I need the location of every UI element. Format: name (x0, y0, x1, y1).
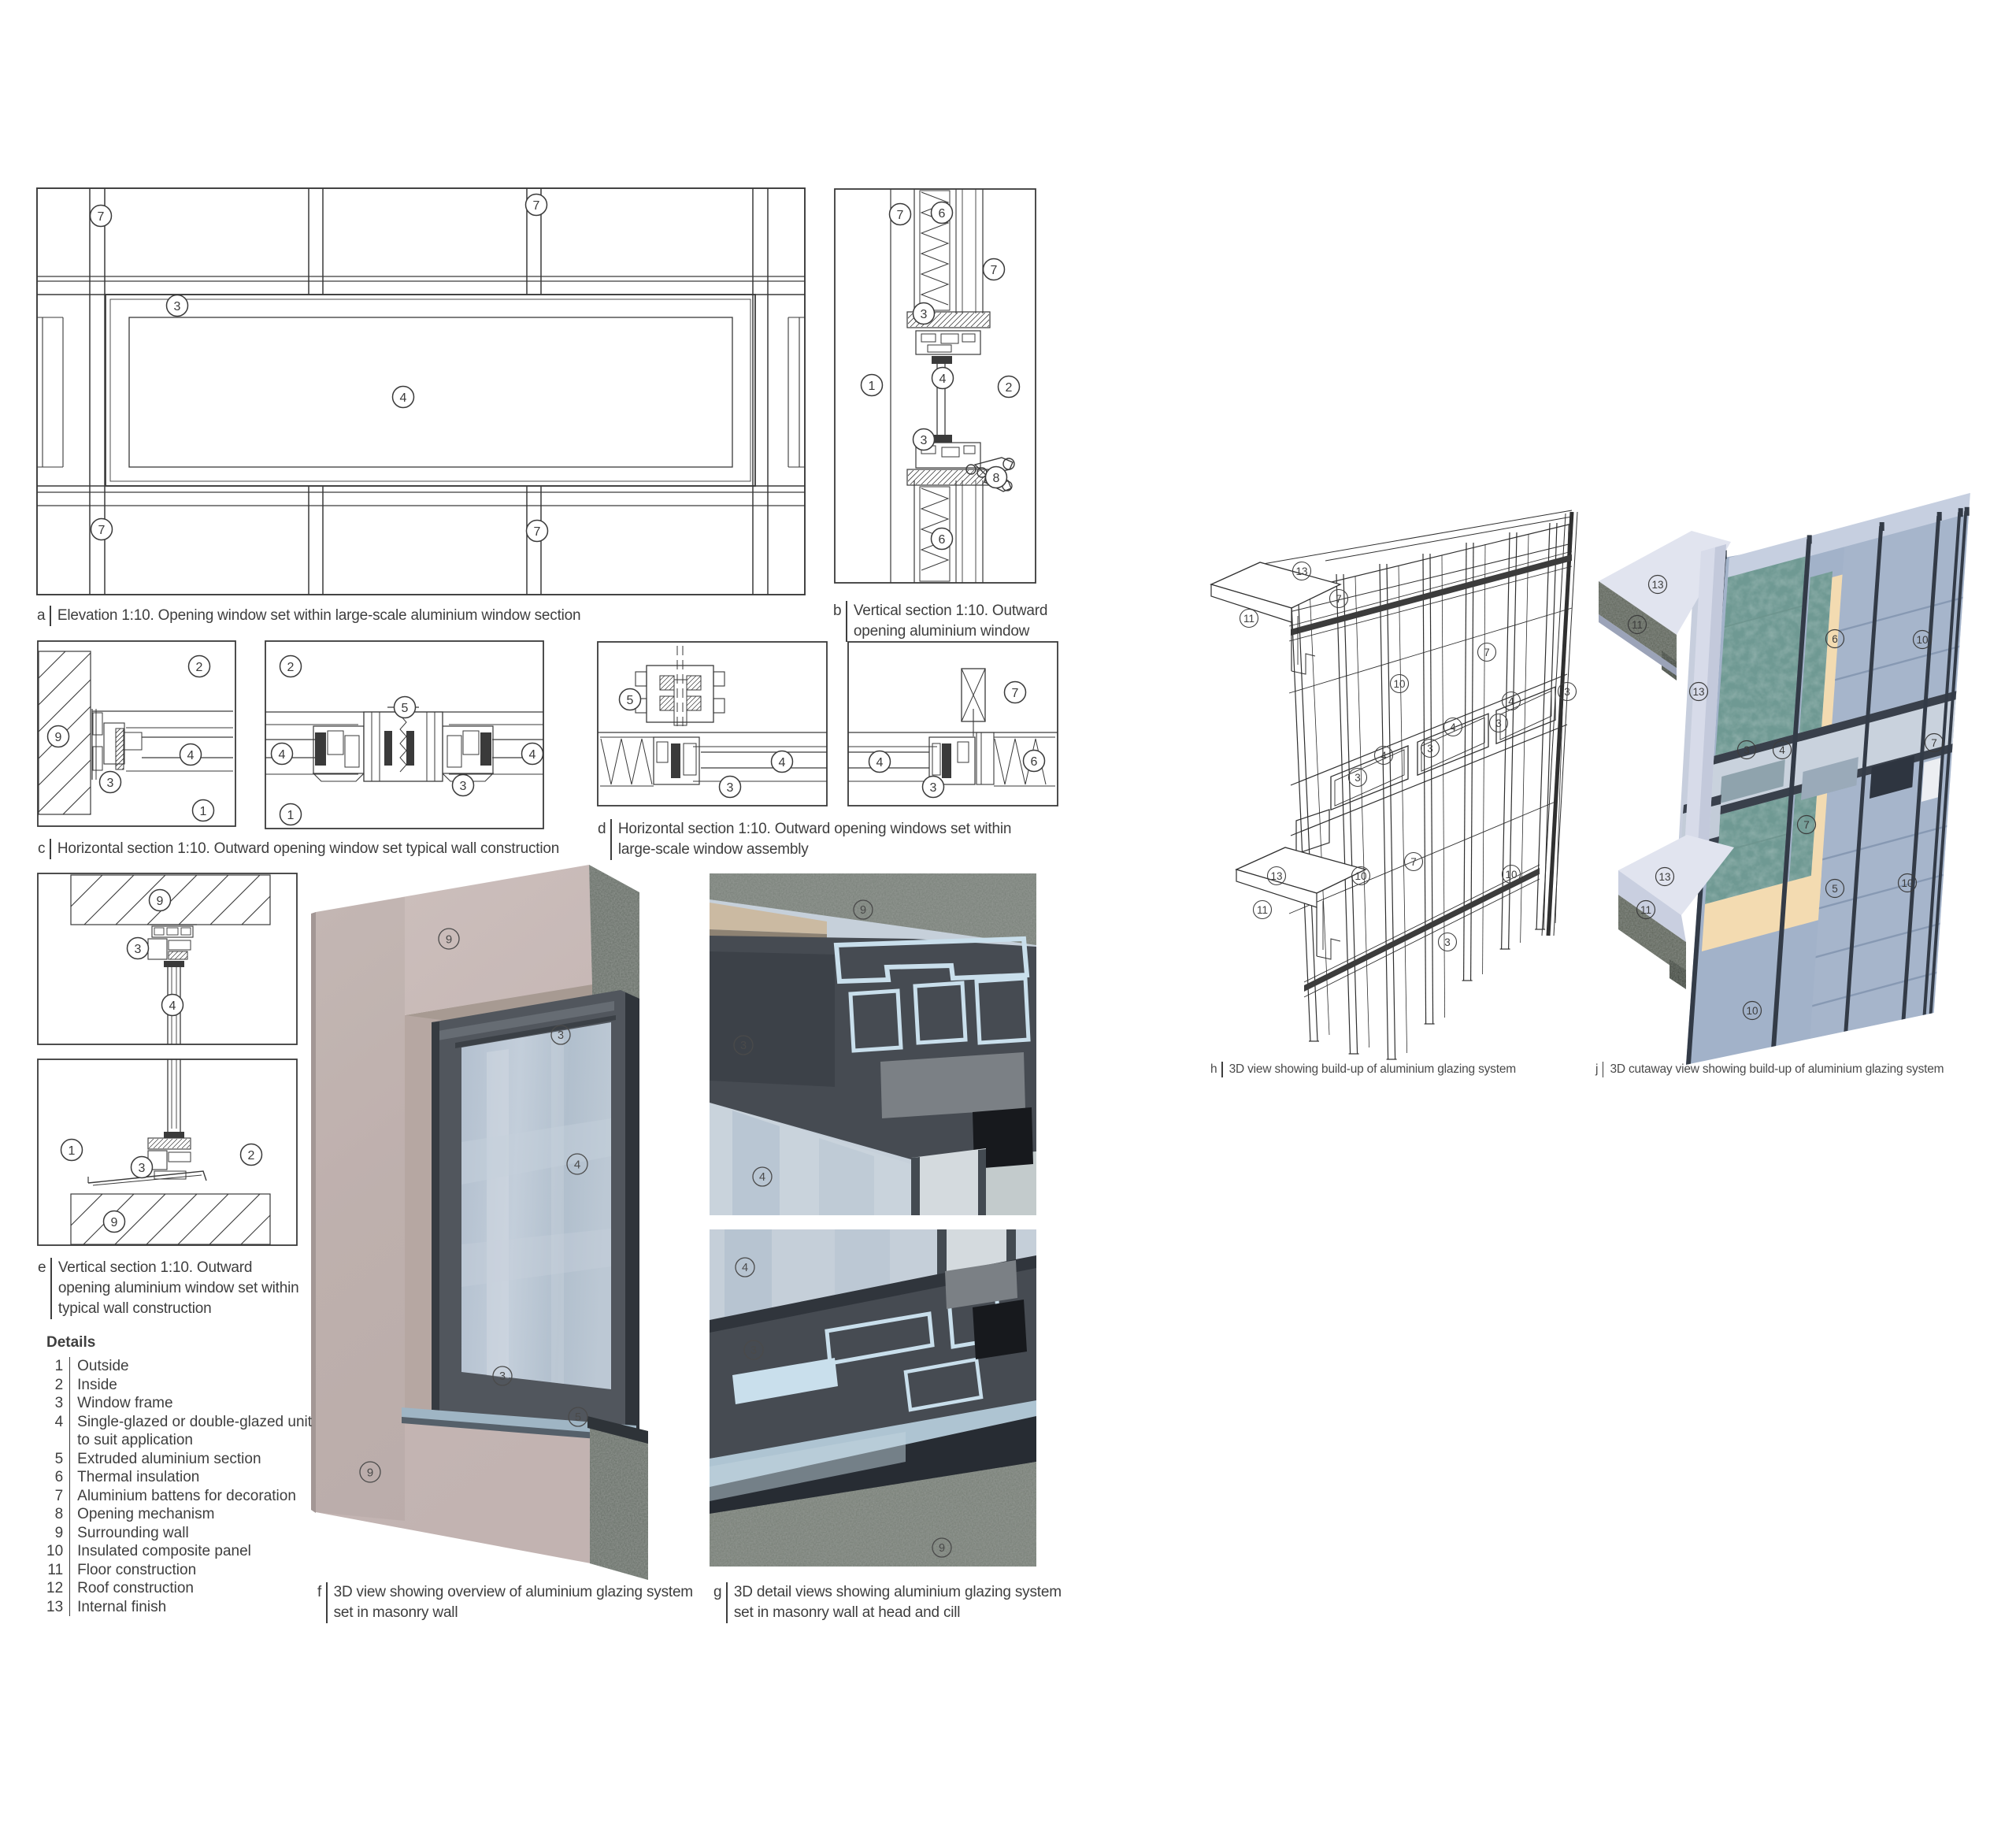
svg-text:6: 6 (1832, 633, 1838, 645)
svg-text:3: 3 (1744, 744, 1750, 756)
svg-text:13: 13 (1692, 686, 1704, 698)
svg-text:9: 9 (939, 1542, 945, 1555)
svg-text:13: 13 (1658, 871, 1670, 883)
svg-text:7: 7 (1803, 819, 1810, 831)
svg-text:4: 4 (1779, 744, 1785, 756)
svg-text:4: 4 (742, 1262, 748, 1274)
svg-text:13: 13 (1651, 579, 1663, 591)
svg-text:10: 10 (1901, 877, 1913, 889)
svg-text:3: 3 (750, 1344, 757, 1357)
svg-text:11: 11 (1640, 904, 1651, 916)
svg-text:7: 7 (1931, 737, 1937, 749)
svg-text:10: 10 (1746, 1005, 1758, 1017)
svg-text:10: 10 (1916, 634, 1928, 646)
svg-text:5: 5 (1832, 883, 1838, 895)
svg-text:11: 11 (1632, 619, 1643, 631)
